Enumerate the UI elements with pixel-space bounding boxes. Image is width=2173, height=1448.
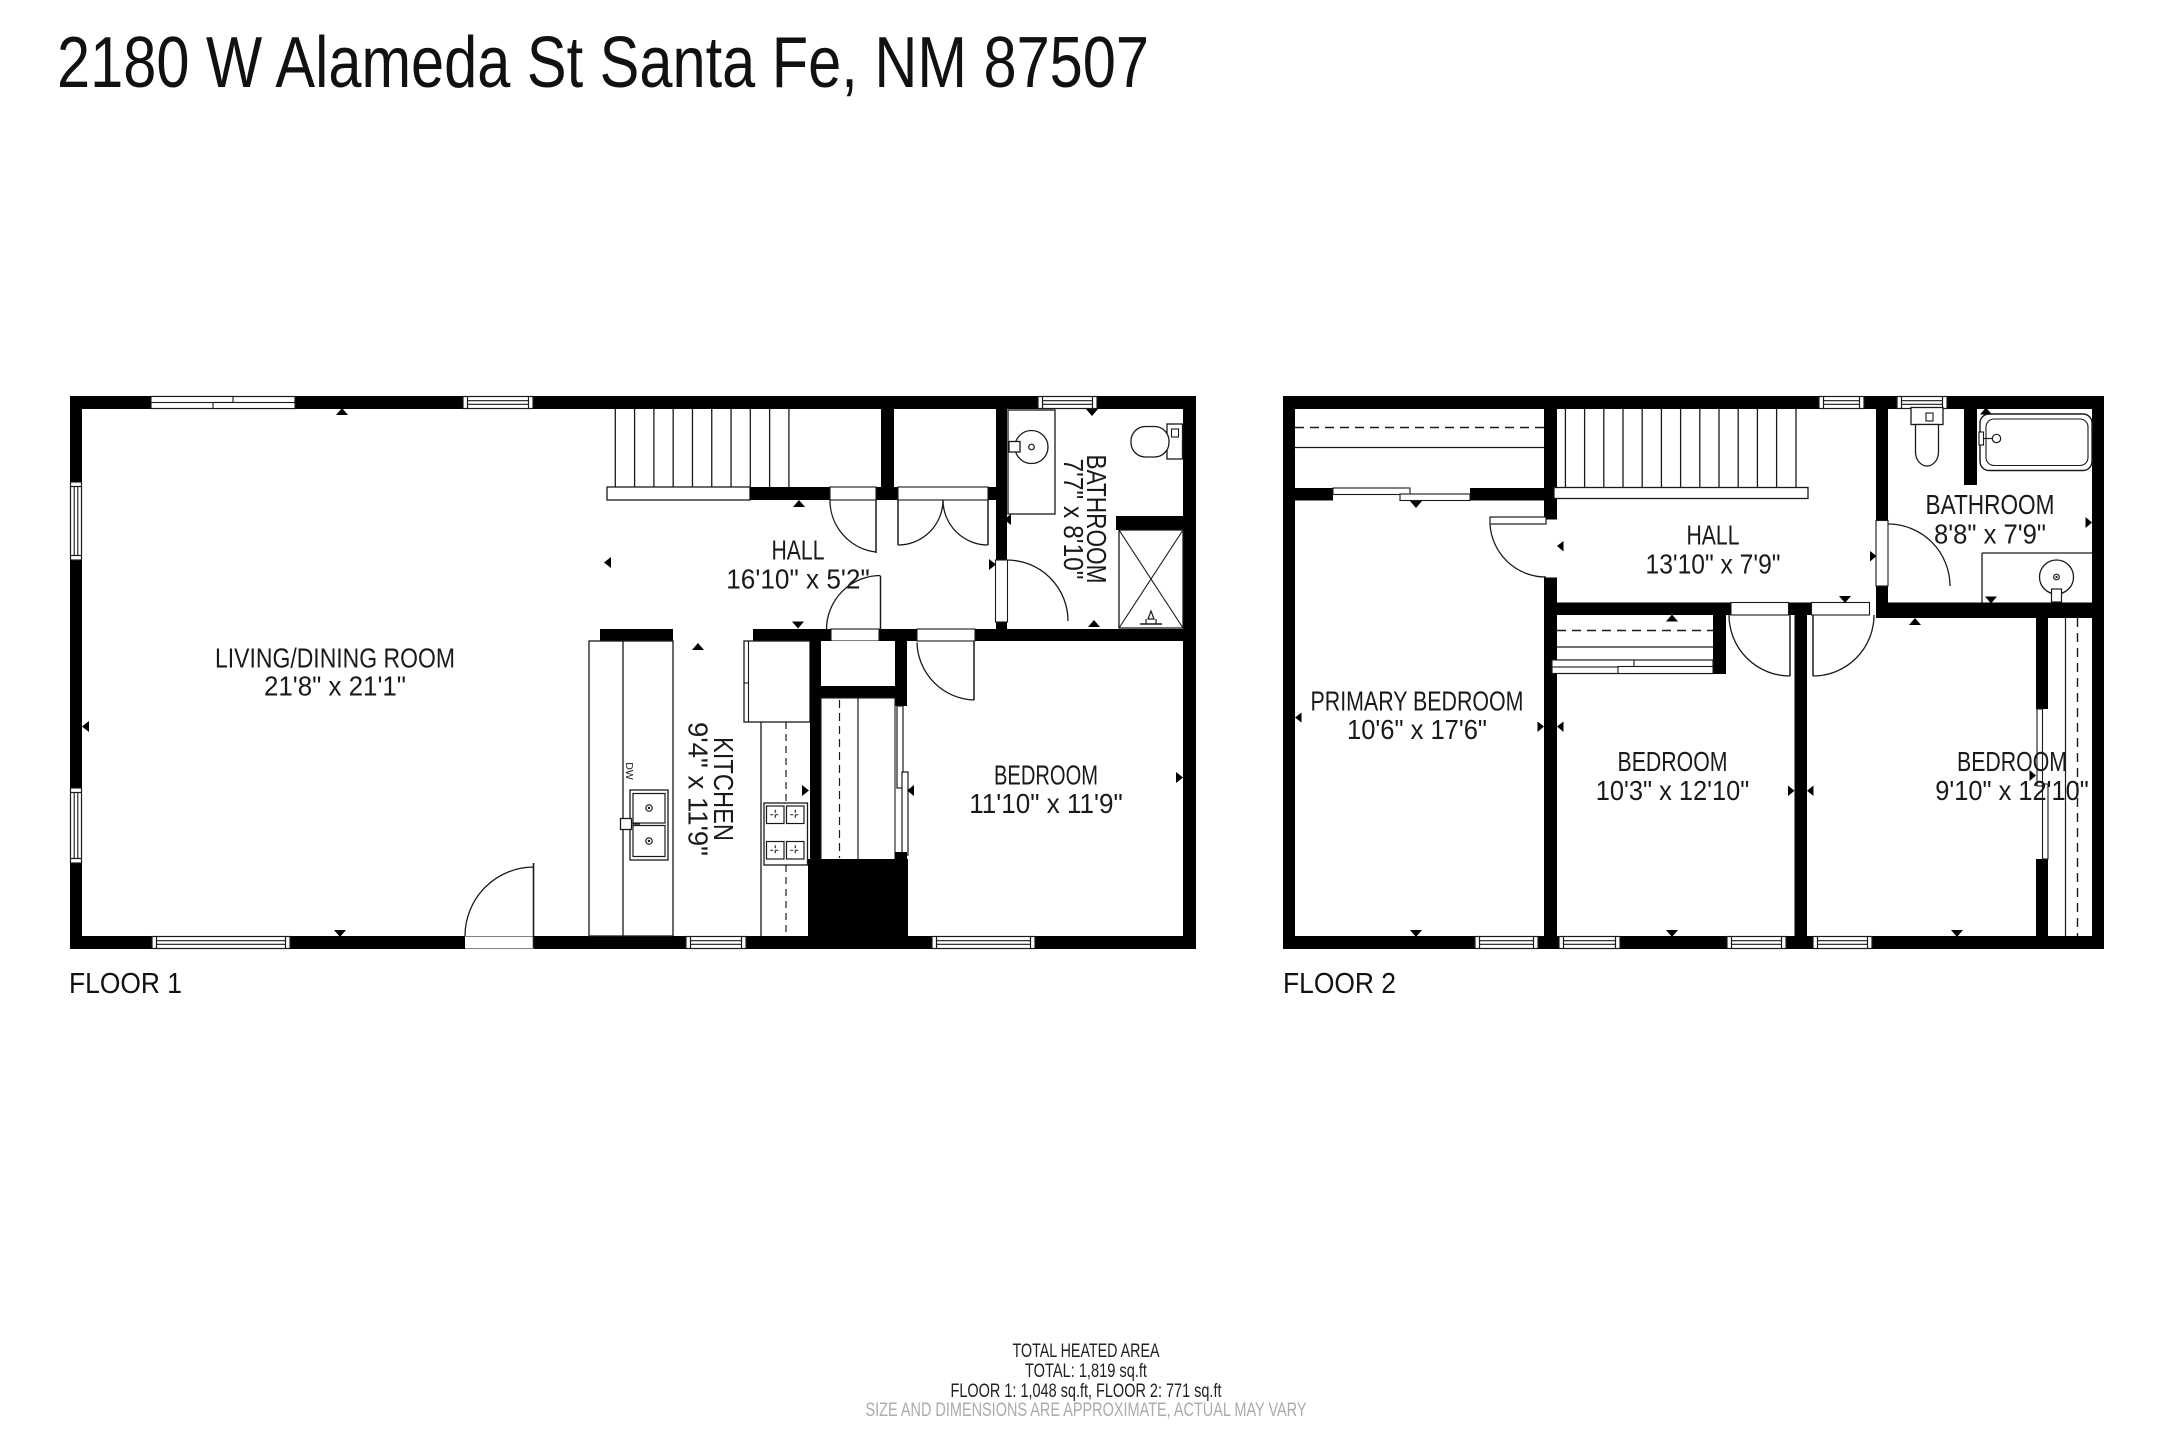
svg-text:LIVING/DINING ROOM: LIVING/DINING ROOM	[215, 643, 455, 674]
svg-text:9'10" x 12'10": 9'10" x 12'10"	[1935, 775, 2089, 806]
svg-text:BATHROOM: BATHROOM	[1926, 489, 2055, 520]
svg-text:9'4" x 11'9": 9'4" x 11'9"	[683, 722, 714, 856]
svg-text:7'7" x 8'10": 7'7" x 8'10"	[1058, 459, 1089, 580]
svg-text:TOTAL HEATED AREA: TOTAL HEATED AREA	[1013, 1340, 1160, 1362]
svg-text:8'8" x 7'9": 8'8" x 7'9"	[1934, 519, 2046, 550]
svg-text:PRIMARY BEDROOM: PRIMARY BEDROOM	[1311, 686, 1524, 717]
svg-text:BEDROOM: BEDROOM	[1957, 746, 2067, 777]
svg-text:HALL: HALL	[1687, 520, 1740, 551]
svg-text:2180 W Alameda St Santa Fe, NM: 2180 W Alameda St Santa Fe, NM 87507	[57, 23, 1149, 103]
svg-text:DW: DW	[623, 762, 635, 780]
svg-text:10'3" x 12'10": 10'3" x 12'10"	[1596, 775, 1750, 806]
svg-text:FLOOR 1: FLOOR 1	[69, 968, 182, 1000]
svg-text:SIZE AND DIMENSIONS ARE APPROX: SIZE AND DIMENSIONS ARE APPROXIMATE, ACT…	[866, 1399, 1307, 1421]
svg-text:10'6" x 17'6": 10'6" x 17'6"	[1347, 714, 1487, 745]
svg-text:FLOOR 2: FLOOR 2	[1283, 968, 1396, 1000]
svg-text:HALL: HALL	[772, 535, 825, 566]
svg-text:21'8" x 21'1": 21'8" x 21'1"	[264, 671, 406, 702]
svg-text:TOTAL: 1,819 sq.ft: TOTAL: 1,819 sq.ft	[1025, 1360, 1147, 1382]
svg-text:11'10" x 11'9": 11'10" x 11'9"	[969, 788, 1123, 819]
svg-text:BEDROOM: BEDROOM	[1618, 746, 1728, 777]
svg-text:16'10" x 5'2": 16'10" x 5'2"	[726, 564, 870, 595]
svg-text:BEDROOM: BEDROOM	[994, 760, 1098, 791]
svg-text:13'10" x 7'9": 13'10" x 7'9"	[1646, 549, 1781, 580]
